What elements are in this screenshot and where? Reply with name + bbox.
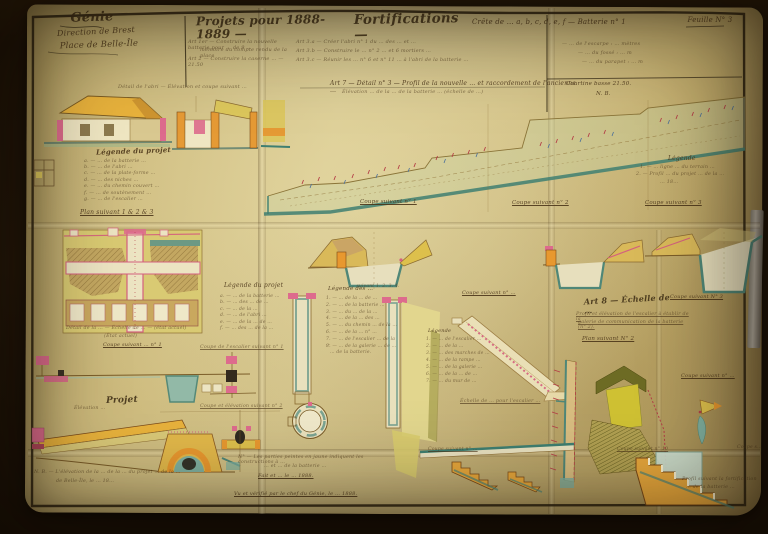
- main-title-detail: Crête de … a, b, c, d, e, f — Batterie n…: [472, 19, 682, 27]
- legend2-item: a. — … de la batterie …: [220, 294, 298, 299]
- cut-label-bl-3: Coupe et élévation suivant n° 2: [200, 404, 285, 409]
- header-note-mid-3: Art 3.c — Réunir les … n° 6 et n° 11 … à…: [296, 58, 481, 64]
- header-note-right-2: — … du fossé : … m: [578, 51, 673, 57]
- profile-cut-label-2: Coupe suivant n° 2: [512, 200, 592, 206]
- profile-legend-line: 2. — Profil … du projet … de la …: [636, 172, 748, 177]
- section1-caption: … suivant 1. 2. 3. 4.: [350, 284, 420, 289]
- legend2-item: b. — … des … de …: [220, 300, 298, 305]
- plan1-caption-2: (État actuel): [104, 334, 166, 339]
- stair-legend-title: Légende: [428, 329, 468, 335]
- stair-legend-item: 5. — … de la galerie …: [426, 365, 512, 370]
- legend1-item: a. — … de la batterie …: [84, 159, 209, 164]
- legend2-title: Légende du projet: [224, 283, 309, 290]
- cut-label-br-9: Coupe suivant n° …: [681, 374, 753, 380]
- battery-plan-drawing: [63, 228, 202, 333]
- legend3-item: 6. — … de la … n° …: [326, 330, 400, 335]
- legend2-item: f. — … des … de la …: [220, 326, 298, 331]
- header-note-right-3: — … du parapet : … m: [582, 60, 677, 66]
- legend2-item: d. — … de l'abri …: [220, 313, 298, 318]
- art8-plan-label: Plan suivant N° 2: [582, 336, 660, 342]
- stair-legend-item: 1. — … de l'escalier …: [426, 337, 512, 342]
- legend1-item: b. — … de l'abri …: [84, 165, 209, 170]
- ditch-cross-section-1: [308, 232, 432, 290]
- bottom-left-note-2: de Belle-Île, le … 18…: [56, 479, 178, 484]
- bottom-center-note-4: Vu et vérifié par le chef du Génie, le ……: [234, 492, 379, 498]
- art8-line-2: galerie de communication de la batterie …: [578, 320, 692, 331]
- elevation-label: Élévation …: [74, 406, 116, 411]
- bottom-center-note-3: Fait et … le … 1888.: [258, 474, 346, 480]
- cut-label-bl-2: Coupe de l'escalier suivant n° 1: [200, 345, 288, 350]
- projet-label: Projet: [106, 394, 161, 406]
- profile-cut-label-3: Coupe suivant n° 3: [645, 200, 725, 206]
- legend3-item: 4. — … de la … des …: [326, 316, 400, 321]
- header-note-mid-1: Art 3.a — Créer l'abri n° 1 du … des … e…: [296, 40, 481, 46]
- abri-elevation-drawing: [44, 96, 172, 147]
- legend1-item: c. — … de la plate-forme …: [84, 171, 209, 176]
- cut-label-bl-1: Coupe suivant … n° 1: [103, 343, 181, 349]
- stair-legend-item: 6. — … de la … de …: [426, 372, 512, 377]
- header-note-right-1: — … de l'escarpe : … mètres: [562, 42, 677, 48]
- profile-subtitle: Élévation … de la … de la batterie … (éc…: [342, 90, 552, 96]
- bottom-center-note-2: … et … de la batterie …: [264, 464, 356, 469]
- header-note-left-3: Art 2 — Construire la caserne … — 21.50: [188, 57, 290, 68]
- abri-caption: Détail de l'abri — Élévation et coupe su…: [118, 85, 253, 91]
- cut-label-mid: Coupe suivant n° …: [462, 291, 532, 297]
- ditch-cross-section-3: [645, 228, 762, 292]
- abri-section-drawing: [172, 96, 258, 149]
- legend1-item: d. — … des niches …: [84, 178, 209, 183]
- corps-title: Génie: [56, 10, 128, 27]
- bottom-left-note-1: N. B. — L'élévation de la … de la … du p…: [34, 470, 212, 475]
- stair-legend-item: 4. — … de la rampe …: [426, 358, 512, 363]
- small-detail-plan: [34, 160, 54, 186]
- bottom-right-caption-1: Profil suivant la fortification: [682, 477, 764, 482]
- legend1-item: e. — … du chemin couvert …: [84, 184, 209, 189]
- plan1-title: Plan suivant 1 & 2 & 3: [80, 210, 215, 217]
- legend3-item: … de la batterie.: [330, 350, 400, 355]
- legend2-item: e. — … de la … de …: [220, 320, 298, 325]
- bottom-right-caption-2: … de la batterie …: [686, 485, 760, 490]
- cut-label-steps-2: Coupe s…: [737, 445, 767, 450]
- legend3-item: 1. — … de la … de …: [326, 296, 400, 301]
- stair-caption: Échelle de … pour l'escalier …: [460, 399, 555, 404]
- legend3-item: 5. — … du chemin … de la …: [326, 323, 400, 328]
- profile-legend-line: … 18…: [660, 180, 720, 185]
- ditch-cross-section-2: [543, 240, 644, 288]
- sheet-number: Feuille N° 3: [680, 17, 740, 25]
- small-stair-steps-drawing: [452, 462, 542, 492]
- cut-label-bar: Coupe suivant n° …: [428, 447, 492, 452]
- stair-legend-item: 7. — … du mur de …: [426, 379, 512, 384]
- cut-label-steps: Coupe suivant n° 10: [617, 447, 683, 452]
- profile-legend-line: 1. — … ligne … du terrain …: [640, 165, 748, 170]
- header-note-right-4: Courtine basse 21.50.: [566, 81, 661, 87]
- art8-cut-label: Coupe suivant N° 3: [670, 295, 758, 301]
- stair-legend-item: 2. — … de la …: [426, 344, 512, 349]
- legend1-item: f. — … de soutènement …: [84, 191, 209, 196]
- stair-legend-item: 3. — … des marches de …: [426, 351, 512, 356]
- main-title-projects: Projets pour 1888-1889 —: [196, 13, 356, 43]
- profile-legend-title: Légende: [668, 156, 718, 163]
- header-note-right-5: N. B.: [596, 91, 626, 97]
- legend3-item: 2. — … de la batterie …: [326, 303, 400, 308]
- legend2-item: c. — … de la …: [220, 307, 298, 312]
- legend3-item: 3. — … du … de la …: [326, 310, 400, 315]
- header-note-mid-2: Art 3.b — Construire le … n° 2 … et 6 mo…: [296, 49, 481, 55]
- profile-cut-label-1: Coupe suivant n° 1: [360, 199, 440, 205]
- photo-backdrop: Génie Direction de Brest Place de Belle-…: [0, 0, 768, 534]
- project-profile-culvert-drawing: [32, 410, 260, 472]
- legend3-item: 8. — … de la galerie … de …: [326, 344, 400, 349]
- legend1-item: g. — … de l'escalier …: [84, 197, 209, 202]
- plan1-caption-1: Détail de la … — Échelle de … — (état ac…: [66, 326, 211, 331]
